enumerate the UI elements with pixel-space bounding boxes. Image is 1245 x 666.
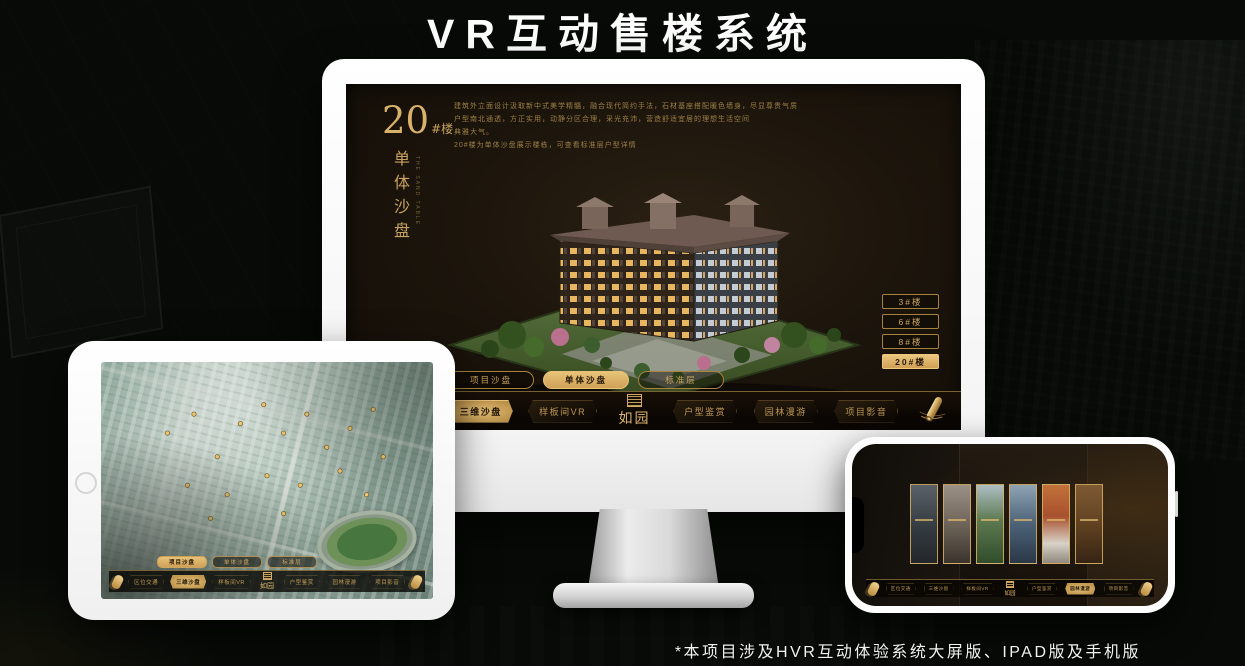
monitor-stand-base: [553, 583, 754, 608]
phone-project-logo[interactable]: 如园: [1005, 581, 1016, 597]
phone-nav-item[interactable]: 户型鉴赏: [1027, 583, 1057, 595]
phone-nav-left-group: 区位交通三维沙盘样板间VR: [878, 583, 1002, 595]
project-logo[interactable]: 如园: [619, 394, 651, 428]
background-buildings: [975, 40, 1245, 460]
gallery-card[interactable]: [1009, 484, 1037, 564]
tablet-nav-item-label: 样板间VR: [218, 580, 245, 586]
tablet-subtab[interactable]: 单体沙盘: [212, 556, 262, 568]
tablet-nav-wrap: 项目沙盘单体沙盘标准层 区位交通三维沙盘样板间VR 如园 户型鉴赏园林漫游项目影…: [109, 556, 425, 592]
promo-canvas: VR互动售楼系统 20#楼 单体沙盘 THE SAND TABLE 建筑外立面设…: [0, 0, 1245, 666]
tablet-subtab-label: 标准层: [282, 558, 302, 566]
sandbox-subtab-label: 项目沙盘: [470, 374, 512, 386]
nav-item[interactable]: 户型鉴赏: [673, 400, 737, 423]
phone-side-button[interactable]: [1175, 491, 1178, 517]
tablet-nav-item-label: 园林漫游: [332, 580, 356, 586]
gallery-card[interactable]: [910, 484, 938, 564]
gallery-card[interactable]: [943, 484, 971, 564]
sandbox-subtab-label: 单体沙盘: [565, 374, 607, 386]
phone-screen: 区位交通三维沙盘样板间VR 如园 户型鉴赏园林漫游项目影音: [852, 444, 1168, 606]
monitor-stand-neck: [588, 509, 719, 589]
floor-button-label: 6#楼: [899, 316, 923, 328]
floor-button-group: 3#楼6#楼8#楼20#楼: [882, 294, 939, 369]
sandbox-subtab[interactable]: 单体沙盘: [543, 371, 629, 389]
tablet-subtab-label: 项目沙盘: [169, 558, 195, 566]
nav-item-label: 园林漫游: [765, 407, 807, 417]
tablet-logo-text: 如园: [260, 581, 274, 591]
section-title-english: THE SAND TABLE: [414, 156, 420, 226]
footnote-caption: *本项目涉及HVR互动体验系统大屏版、IPAD版及手机版: [675, 638, 1141, 662]
gallery-card[interactable]: [976, 484, 1004, 564]
floor-button[interactable]: 8#楼: [882, 334, 939, 349]
phone-nav-item[interactable]: 区位交通: [886, 583, 916, 595]
tablet-subtab[interactable]: 标准层: [267, 556, 317, 568]
building-number: 20#楼: [382, 102, 453, 139]
tablet-nav-left-group: 区位交通三维沙盘样板间VR: [122, 575, 257, 589]
floor-button-label: 8#楼: [899, 336, 923, 348]
page-title: VR互动售楼系统: [0, 0, 1245, 60]
nav-item-label: 户型鉴赏: [684, 407, 726, 417]
tablet-nav-item[interactable]: 三维沙盘: [170, 575, 206, 589]
sandbox-subtab[interactable]: 标准层: [638, 371, 724, 389]
phone-nav-item[interactable]: 样板间VR: [961, 583, 993, 595]
tablet-nav-item-label: 区位交通: [134, 580, 158, 586]
floor-button-label: 3#楼: [899, 296, 923, 308]
seal-icon: [263, 572, 272, 580]
phone-navigation-bar: 区位交通三维沙盘样板间VR 如园 户型鉴赏园林漫游项目影音: [866, 579, 1154, 597]
phone-nav-right-group: 户型鉴赏园林漫游项目影音: [1019, 583, 1143, 595]
nav-right-group: 户型鉴赏园林漫游项目影音: [657, 400, 916, 423]
phone-nav-item-label: 样板间VR: [966, 586, 988, 591]
sandbox-subtab-label: 标准层: [665, 374, 697, 386]
nav-item-label: 项目影音: [845, 407, 887, 417]
phone-nav-item-label: 园林漫游: [1070, 586, 1090, 591]
tablet-nav-item-label: 三维沙盘: [176, 580, 200, 586]
gallery-card[interactable]: [1042, 484, 1070, 564]
phone-nav-item-label: 三维沙盘: [929, 586, 949, 591]
floor-button[interactable]: 3#楼: [882, 294, 939, 309]
tablet-project-logo[interactable]: 如园: [260, 572, 274, 591]
building-number-unit: #楼: [431, 122, 453, 136]
phone-nav-item[interactable]: 三维沙盘: [924, 583, 954, 595]
sandbox-subtab[interactable]: 项目沙盘: [448, 371, 534, 389]
floor-button[interactable]: 6#楼: [882, 314, 939, 329]
nav-item[interactable]: 园林漫游: [754, 400, 818, 423]
nav-item[interactable]: 项目影音: [834, 400, 898, 423]
description-line: 建筑外立面设计汲取新中式美学精髓，融合现代简约手法，石材基座搭配暖色墙身，尽显尊…: [454, 100, 864, 113]
tablet-home-button[interactable]: [75, 472, 97, 494]
phone-nav-item[interactable]: 园林漫游: [1065, 583, 1095, 595]
description-line: 典雅大气。: [454, 126, 864, 139]
nav-item-label: 样板间VR: [539, 407, 586, 417]
scene-gallery: [910, 484, 1103, 564]
phone-nav-item[interactable]: 项目影音: [1104, 583, 1134, 595]
phone-nav-item-label: 区位交通: [891, 586, 911, 591]
tablet-navigation-bar: 区位交通三维沙盘样板间VR 如园 户型鉴赏园林漫游项目影音: [109, 570, 425, 592]
seal-icon: [1006, 581, 1014, 588]
background-plaque: [0, 186, 163, 359]
tablet-nav-item-label: 户型鉴赏: [290, 580, 314, 586]
tablet-nav-right-group: 户型鉴赏园林漫游项目影音: [277, 575, 412, 589]
tablet-nav-item-label: 项目影音: [375, 580, 399, 586]
phone-logo-text: 如园: [1005, 589, 1016, 597]
phone-nav-item-label: 项目影音: [1109, 586, 1129, 591]
tablet-nav-item[interactable]: 户型鉴赏: [284, 575, 320, 589]
tablet-device: 项目沙盘单体沙盘标准层 区位交通三维沙盘样板间VR 如园 户型鉴赏园林漫游项目影…: [68, 341, 455, 620]
tablet-nav-item[interactable]: 区位交通: [128, 575, 164, 589]
gallery-card[interactable]: [1075, 484, 1103, 564]
tablet-nav-item[interactable]: 园林漫游: [326, 575, 362, 589]
building-number-value: 20: [382, 99, 429, 142]
nav-item-label: 三维沙盘: [460, 407, 502, 417]
project-logo-text: 如园: [619, 408, 651, 428]
scroll-menu-icon[interactable]: [919, 395, 949, 427]
tablet-screen: 项目沙盘单体沙盘标准层 区位交通三维沙盘样板间VR 如园 户型鉴赏园林漫游项目影…: [101, 362, 433, 599]
phone-nav-item-label: 户型鉴赏: [1032, 586, 1052, 591]
phone-device: 区位交通三维沙盘样板间VR 如园 户型鉴赏园林漫游项目影音: [845, 437, 1175, 613]
tablet-subtab-group: 项目沙盘单体沙盘标准层: [157, 556, 425, 568]
tablet-subtab-label: 单体沙盘: [224, 558, 250, 566]
tablet-nav-item[interactable]: 项目影音: [369, 575, 405, 589]
tablet-subtab[interactable]: 项目沙盘: [157, 556, 207, 568]
floor-button-label: 20#楼: [895, 356, 926, 368]
nav-item[interactable]: 样板间VR: [528, 400, 597, 423]
phone-notch: [852, 497, 864, 553]
seal-icon: [627, 394, 642, 407]
floor-button[interactable]: 20#楼: [882, 354, 939, 369]
tablet-nav-item[interactable]: 样板间VR: [212, 575, 251, 589]
description-line: 户型南北通透，方正实用，动静分区合理，采光充沛，营造舒适宜居的理想生活空间: [454, 113, 864, 126]
nav-item[interactable]: 三维沙盘: [449, 400, 513, 423]
sandbox-subtab-group: 项目沙盘单体沙盘标准层: [448, 371, 724, 389]
section-title-vertical: 单体沙盘: [388, 150, 412, 246]
